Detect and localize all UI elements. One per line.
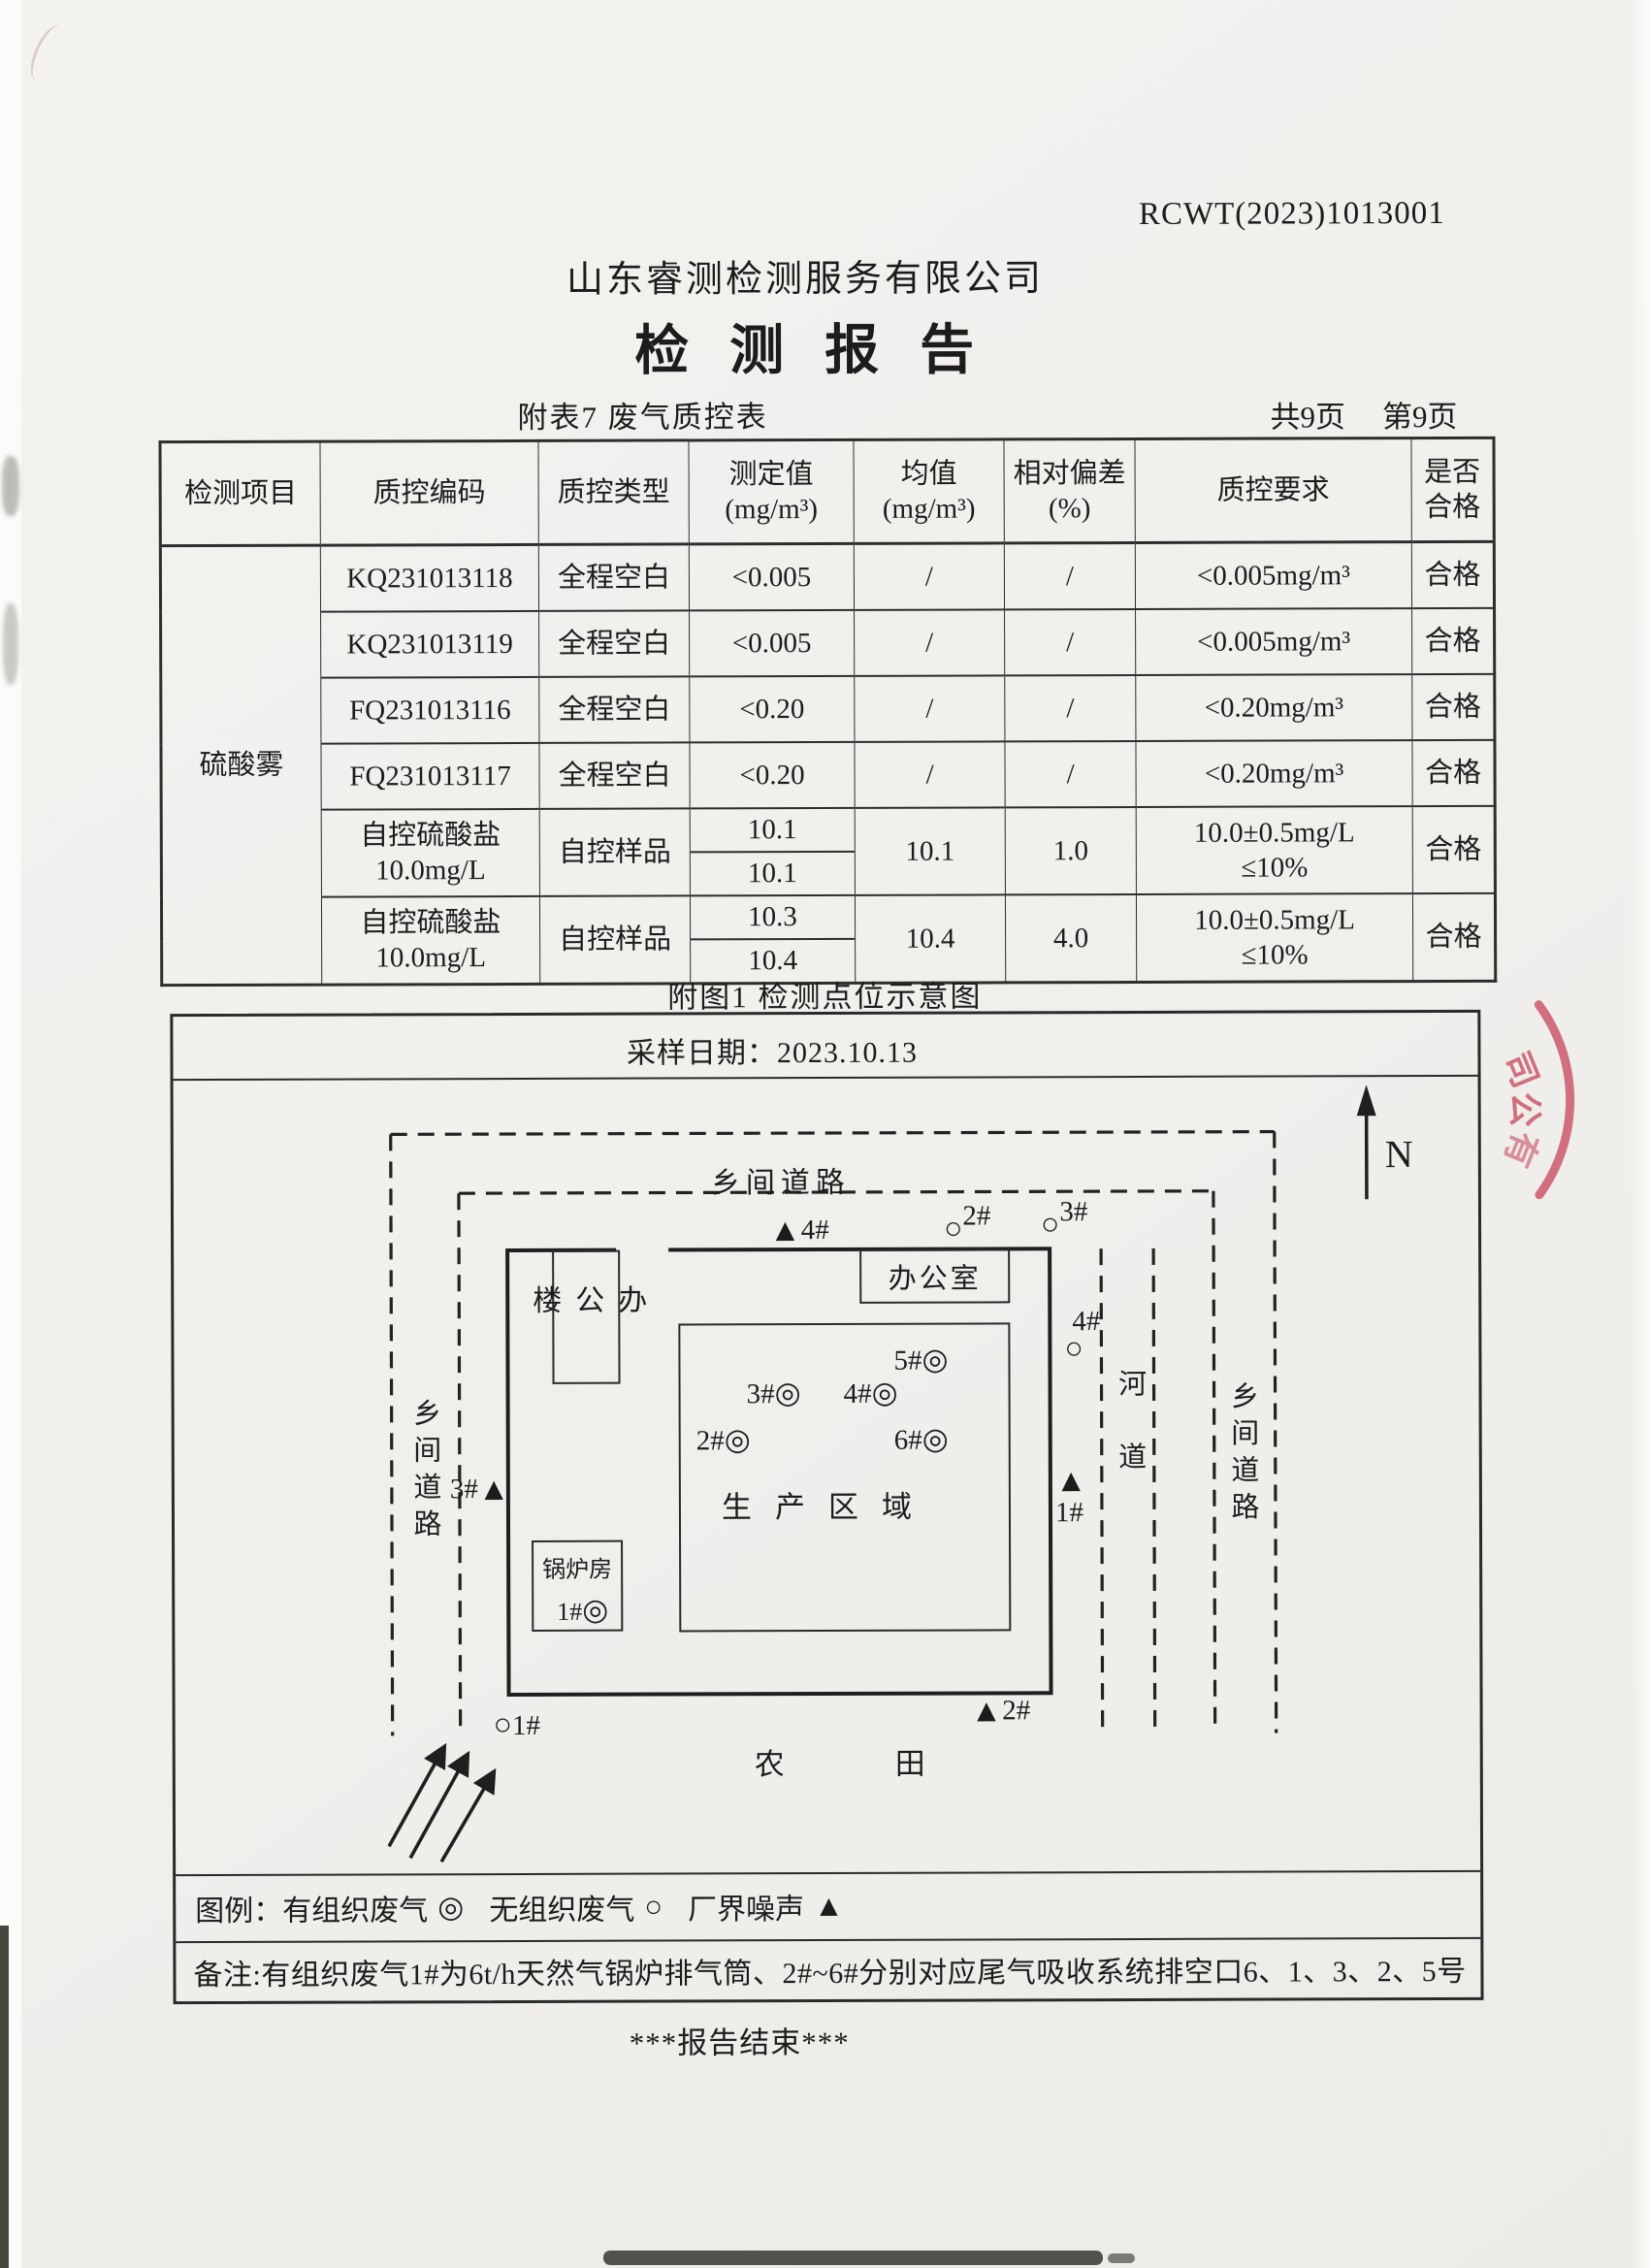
cell-deviation: 4.0	[1005, 894, 1136, 983]
paper-sheet: RCWT(2023)1013001 山东睿测检测服务有限公司 检 测 报 告 附…	[0, 0, 1649, 2268]
cell-pass: 合格	[1411, 541, 1494, 608]
unorganized-gas-icon: ○	[1041, 1206, 1059, 1241]
scan-smudge	[3, 603, 18, 685]
legend-unorganized-label: 无组织废气	[489, 1886, 634, 1928]
unorganized-gas-icon: ○	[634, 1890, 663, 1925]
cell-requirement: 10.0±0.5mg/L ≤10%	[1136, 806, 1412, 894]
divider-line	[174, 1075, 1478, 1081]
cell-measured: <0.20	[690, 676, 855, 743]
organized-gas-icon: ◎	[725, 1422, 751, 1456]
cell-mean: 10.4	[855, 894, 1005, 983]
red-seal-char: 有	[1494, 1124, 1554, 1176]
cell-requirement: 10.0±0.5mg/L ≤10%	[1136, 893, 1412, 982]
point-organized-5: 5#◎	[893, 1343, 948, 1377]
point-organized-4: 4#◎	[844, 1376, 898, 1410]
cell-code: KQ231013118	[320, 544, 538, 611]
point-organized-2: 2#◎	[696, 1422, 751, 1457]
col-header-item: 检测项目	[160, 441, 320, 546]
divider-line	[176, 1870, 1480, 1876]
point-organized-1: 1#◎	[557, 1593, 608, 1628]
qc-table: 检测项目 质控编码 质控类型 测定值 (mg/m³) 均值 (mg/m³) 相对…	[158, 437, 1497, 987]
cell-code: FQ231013116	[321, 677, 539, 744]
col-header-deviation: 相对偏差 (%)	[1004, 438, 1135, 542]
point-noise-3: 3#▲	[450, 1474, 510, 1507]
caption-row: 附表7 废气质控表 共9页 第9页	[158, 390, 1492, 433]
cell-pass: 合格	[1412, 806, 1495, 893]
subtable-caption: 附表7 废气质控表	[517, 392, 767, 437]
table-row: KQ231013119 全程空白 <0.005 / / <0.005mg/m³ …	[161, 608, 1495, 678]
production-area-label: 生产区域	[722, 1482, 935, 1527]
legend-organized-label: 有组织废气	[282, 1886, 428, 1928]
noise-icon: ▲	[769, 1214, 801, 1248]
cell-type: 全程空白	[538, 544, 689, 611]
scan-bottom-blob	[1108, 2253, 1135, 2263]
red-seal-char: 公	[1503, 1092, 1553, 1127]
scanned-report-page: RCWT(2023)1013001 山东睿测检测服务有限公司 检 测 报 告 附…	[0, 0, 1649, 2268]
cell-mean: /	[855, 609, 1005, 675]
road-label-top: 乡间道路	[711, 1158, 851, 1201]
cell-requirement: <0.005mg/m³	[1136, 608, 1412, 675]
cell-measured: <0.20	[690, 742, 855, 809]
cell-measured-2: 10.1	[690, 852, 855, 896]
cell-code: 自控硫酸盐 10.0mg/L	[321, 809, 539, 897]
cell-deviation: /	[1005, 609, 1136, 675]
report-number: RCWT(2023)1013001	[1139, 196, 1445, 233]
scan-edge-right	[1630, 0, 1649, 2268]
cell-mean: /	[855, 675, 1005, 741]
divider-line	[176, 1937, 1480, 1943]
point-noise-1: ▲1#	[1055, 1466, 1087, 1528]
table-row: FQ231013116 全程空白 <0.20 / / <0.20mg/m³ 合格	[161, 674, 1495, 744]
table-row: FQ231013117 全程空白 <0.20 / / <0.20mg/m³ 合格	[161, 740, 1495, 810]
col-header-mean: 均值 (mg/m³)	[854, 439, 1004, 543]
sampling-date: 采样日期：2023.10.13	[119, 1026, 1424, 1073]
farmland-label-2: 田	[895, 1739, 925, 1783]
point-organized-3: 3#◎	[747, 1376, 801, 1410]
point-unorganized-3: ○3#	[1041, 1208, 1087, 1242]
table-header-row: 检测项目 质控编码 质控类型 测定值 (mg/m³) 均值 (mg/m³) 相对…	[160, 437, 1494, 545]
legend-noise-label: 厂界噪声	[688, 1885, 804, 1928]
figure-note: 备注:有组织废气1#为6t/h天然气锅炉排气筒、2#~6#分别对应尾气吸收系统排…	[193, 1947, 1473, 1993]
cell-pass: 合格	[1412, 674, 1495, 740]
cell-type: 全程空白	[539, 610, 690, 676]
scan-smudge	[2, 456, 19, 516]
unorganized-gas-icon: ○	[494, 1706, 512, 1741]
col-header-requirement: 质控要求	[1135, 438, 1411, 543]
item-cell: 硫酸雾	[160, 545, 321, 986]
cell-deviation: 1.0	[1005, 807, 1136, 894]
cell-mean: 10.1	[855, 807, 1005, 894]
cell-measured-1: 10.3	[690, 895, 855, 940]
pages-total: 共9页	[1270, 392, 1345, 436]
page-title: 检 测 报 告	[0, 304, 1635, 387]
table-row: 自控硫酸盐 10.0mg/L 自控样品 10.1 10.1 1.0 10.0±0…	[161, 806, 1495, 854]
cell-type: 自控样品	[539, 808, 690, 895]
organized-gas-icon: ◎	[428, 1890, 464, 1925]
point-noise-2: ▲2#	[971, 1695, 1031, 1728]
north-label: N	[1385, 1131, 1413, 1177]
cell-code: FQ231013117	[321, 743, 539, 810]
cell-pass: 合格	[1412, 740, 1495, 806]
cell-code: 自控硫酸盐 10.0mg/L	[321, 896, 539, 985]
cell-deviation: /	[1005, 741, 1136, 807]
boiler-room: 锅炉房 1#◎	[532, 1540, 623, 1632]
office-building: 办公楼	[552, 1250, 620, 1384]
page-current: 第9页	[1382, 392, 1458, 436]
red-seal-char: 司	[1494, 1043, 1554, 1094]
noise-icon: ▲	[478, 1473, 510, 1507]
point-unorganized-2: ○2#	[944, 1212, 990, 1246]
boundary-noise-icon: ▲	[804, 1889, 844, 1924]
unorganized-gas-icon: ○	[944, 1211, 962, 1246]
cell-deviation: /	[1005, 675, 1136, 741]
office-room-label: 办公室	[861, 1255, 1008, 1296]
table-row: 硫酸雾 KQ231013118 全程空白 <0.005 / / <0.005mg…	[160, 541, 1494, 612]
noise-icon: ▲	[1055, 1464, 1087, 1499]
farmland-label-1: 农	[755, 1739, 785, 1783]
cell-code: KQ231013119	[321, 611, 539, 678]
cell-mean: /	[854, 543, 1004, 610]
organized-gas-icon: ◎	[922, 1422, 949, 1456]
page-indicator: 共9页 第9页	[1270, 392, 1457, 437]
col-header-code: 质控编码	[320, 440, 538, 545]
report-end-text: ***报告结束***	[630, 2018, 850, 2062]
noise-icon: ▲	[971, 1694, 1003, 1729]
organized-gas-icon: ◎	[921, 1343, 948, 1377]
organized-gas-icon: ◎	[582, 1593, 608, 1627]
office-room: 办公室	[859, 1248, 1010, 1303]
road-label-right: 乡间道路	[1222, 1381, 1263, 1529]
col-header-measured: 测定值 (mg/m³)	[689, 439, 854, 544]
point-unorganized-1: ○1#	[494, 1708, 540, 1742]
cell-pass: 合格	[1412, 893, 1495, 982]
cell-type: 自控样品	[539, 895, 690, 984]
cell-mean: /	[855, 741, 1005, 807]
col-header-type: 质控类型	[538, 440, 689, 544]
river-label: 河道	[1109, 1369, 1149, 1514]
cell-measured: <0.005	[689, 543, 854, 610]
cell-requirement: <0.005mg/m³	[1135, 542, 1411, 609]
factory-gate-gap	[616, 1245, 668, 1254]
table-row: 自控硫酸盐 10.0mg/L 自控样品 10.3 10.4 4.0 10.0±0…	[161, 893, 1495, 941]
organized-gas-icon: ◎	[775, 1376, 801, 1409]
cell-deviation: /	[1004, 542, 1135, 609]
point-unorganized-4: 4#○	[1064, 1307, 1100, 1361]
point-noise-4: ▲4#	[769, 1215, 829, 1247]
cell-requirement: <0.20mg/m³	[1136, 740, 1412, 807]
scan-streak	[0, 1926, 9, 2268]
cell-measured: <0.005	[690, 610, 855, 677]
cell-measured-1: 10.1	[690, 808, 855, 853]
scan-bottom-band	[603, 2251, 1103, 2265]
unorganized-gas-icon: ○	[1064, 1337, 1100, 1362]
cell-type: 全程空白	[539, 742, 690, 808]
company-name: 山东睿测检测服务有限公司	[0, 245, 1630, 304]
road-label-left: 乡间道路	[404, 1398, 445, 1545]
cell-pass: 合格	[1412, 608, 1495, 674]
cell-type: 全程空白	[539, 676, 690, 742]
cell-requirement: <0.20mg/m³	[1136, 674, 1412, 741]
legend-prefix: 图例：	[195, 1887, 282, 1929]
office-building-label: 办公楼	[522, 1284, 650, 1349]
col-header-pass: 是否 合格	[1411, 437, 1494, 541]
boiler-room-label: 锅炉房	[533, 1550, 621, 1584]
production-area-box	[678, 1322, 1011, 1632]
point-organized-6: 6#◎	[894, 1422, 949, 1457]
legend-row: 图例： 有组织废气 ◎ 无组织废气 ○ 厂界噪声 ▲	[195, 1885, 844, 1929]
organized-gas-icon: ◎	[872, 1376, 898, 1409]
